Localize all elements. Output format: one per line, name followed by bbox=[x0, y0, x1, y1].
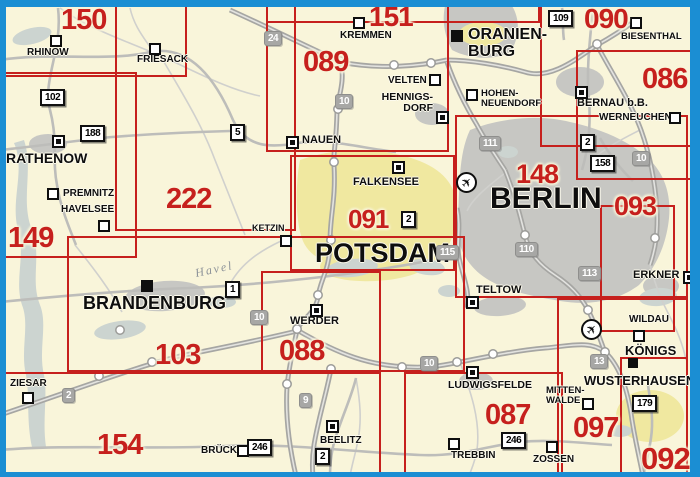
map-sheet-number-089: 089 bbox=[303, 48, 348, 77]
town-symbol-black-icon bbox=[451, 30, 463, 42]
map-sheet-number-088: 088 bbox=[279, 337, 324, 366]
motorway-shield-110: 110 bbox=[515, 242, 538, 257]
town-symbol-plain-icon bbox=[50, 35, 62, 47]
motorway-shield-10: 10 bbox=[335, 94, 353, 109]
motorway-junction-dot bbox=[489, 350, 497, 358]
map-sheet-number-090: 090 bbox=[584, 5, 628, 33]
map-sheet-number-097: 097 bbox=[573, 414, 618, 443]
town-symbol-dot-icon bbox=[466, 296, 479, 309]
town-label-ketzin: KETZIN bbox=[252, 224, 285, 234]
road-shield-102: 102 bbox=[40, 89, 65, 106]
motorway-shield-10: 10 bbox=[420, 356, 438, 371]
town-symbol-plain-icon bbox=[630, 17, 642, 29]
town-label-hohen-neuendorf: HOHEN- NEUENDORF bbox=[481, 89, 541, 110]
motorway-shield-10: 10 bbox=[632, 151, 650, 166]
map-sheet-number-151: 151 bbox=[369, 3, 413, 31]
road-shield-2: 2 bbox=[315, 448, 330, 465]
town-label-rathenow: RATHENOW bbox=[6, 151, 87, 166]
frame-left bbox=[0, 0, 6, 477]
frame-right bbox=[690, 0, 700, 477]
motorway-shield-115: 115 bbox=[436, 245, 459, 260]
town-symbol-dot-icon bbox=[392, 161, 405, 174]
road-shield-246: 246 bbox=[247, 439, 272, 456]
road-shield-188: 188 bbox=[80, 125, 105, 142]
road-shield-179: 179 bbox=[632, 395, 657, 412]
road-shield-2: 2 bbox=[401, 211, 416, 228]
motorway-shield-24: 24 bbox=[264, 31, 282, 46]
motorway-shield-10: 10 bbox=[250, 310, 268, 325]
town-symbol-plain-icon bbox=[47, 188, 59, 200]
town-symbol-dot-icon bbox=[52, 135, 65, 148]
town-label-trebbin: TREBBIN bbox=[451, 451, 495, 462]
map-sheet-number-087: 087 bbox=[485, 401, 530, 430]
town-symbol-dot-icon bbox=[286, 136, 299, 149]
town-label-ludwigsfelde: LUDWIGSFELDE bbox=[448, 380, 532, 391]
motorway-shield-9: 9 bbox=[299, 393, 312, 408]
map-sheet-number-086: 086 bbox=[642, 65, 687, 94]
town-symbol-plain-icon bbox=[98, 220, 110, 232]
town-symbol-plain-icon bbox=[149, 43, 161, 55]
town-label-zossen: ZOSSEN bbox=[533, 455, 574, 466]
town-symbol-plain-icon bbox=[22, 392, 34, 404]
town-symbol-plain-icon bbox=[353, 17, 365, 29]
airport-icon: ✈ bbox=[456, 172, 477, 193]
motorway-shield-111: 111 bbox=[479, 136, 501, 151]
town-label-potsdam: POTSDAM bbox=[315, 239, 450, 268]
town-label-werneuchen: WERNEUCHEN bbox=[599, 113, 672, 124]
town-symbol-plain-icon bbox=[280, 235, 292, 247]
map-sheet-number-150: 150 bbox=[61, 6, 106, 35]
map-sheet-number-149: 149 bbox=[8, 224, 53, 253]
town-label-velten: VELTEN bbox=[388, 76, 427, 87]
road-shield-1: 1 bbox=[225, 281, 240, 298]
town-symbol-plain-icon bbox=[429, 74, 441, 86]
road-shield-109: 109 bbox=[548, 10, 573, 27]
motorway-shield-2: 2 bbox=[62, 388, 75, 403]
town-symbol-dot-icon bbox=[310, 304, 323, 317]
town-label-brandenburg: BRANDENBURG bbox=[83, 294, 226, 313]
town-label-erkner: ERKNER bbox=[633, 270, 679, 282]
town-symbol-plain-icon bbox=[448, 438, 460, 450]
town-label-teltow: TELTOW bbox=[476, 285, 521, 297]
town-label-beelitz: BEELITZ bbox=[320, 436, 362, 447]
town-label-wildau: WILDAU bbox=[629, 315, 669, 326]
town-label-ziesar: ZIESAR bbox=[10, 379, 47, 390]
map-sheet-number-103: 103 bbox=[155, 341, 200, 370]
town-label-biesenthal: BIESENTHAL bbox=[621, 32, 682, 42]
town-label-br-ck: BRÜCK bbox=[201, 446, 237, 457]
town-symbol-plain-icon bbox=[582, 398, 594, 410]
map-sheet-number-093: 093 bbox=[614, 193, 656, 220]
town-label-friesack: FRIESACK bbox=[137, 55, 188, 66]
map-sheet-number-154: 154 bbox=[97, 431, 142, 460]
road-shield-246: 246 bbox=[501, 432, 526, 449]
town-symbol-dot-icon bbox=[466, 366, 479, 379]
town-label-werder: WERDER bbox=[290, 316, 339, 328]
frame-bottom bbox=[0, 472, 700, 477]
town-label-rhinow: RHINOW bbox=[27, 48, 69, 59]
town-symbol-black-icon bbox=[141, 280, 153, 292]
town-symbol-plain-icon bbox=[466, 89, 478, 101]
town-symbol-plain-icon bbox=[546, 441, 558, 453]
road-shield-5: 5 bbox=[230, 124, 245, 141]
map-sheet-number-091: 091 bbox=[348, 206, 388, 232]
town-label-bernau-b-b-: BERNAU b.B. bbox=[577, 98, 648, 110]
town-label-kremmen: KREMMEN bbox=[340, 31, 392, 42]
town-label-mitten-walde: MITTEN- WALDE bbox=[546, 386, 585, 407]
map-sheet-number-148: 148 bbox=[516, 161, 558, 188]
road-shield-2: 2 bbox=[580, 134, 595, 151]
town-label-wusterhausen: WUSTERHAUSEN bbox=[584, 374, 695, 388]
airport-icon: ✈ bbox=[581, 319, 602, 340]
town-label-k-nigs: KÖNIGS bbox=[625, 344, 676, 358]
town-symbol-black-icon bbox=[628, 358, 638, 368]
town-label-havelsee: HAVELSEE bbox=[61, 205, 114, 216]
road-shield-158: 158 bbox=[590, 155, 615, 172]
town-symbol-dot-icon bbox=[575, 86, 588, 99]
town-label-oranien-burg: ORANIEN- BURG bbox=[468, 26, 547, 61]
map-sheet-number-092: 092 bbox=[641, 443, 690, 474]
town-label-hennigs-dorf: HENNIGS- DORF bbox=[373, 92, 433, 115]
town-symbol-plain-icon bbox=[633, 330, 645, 342]
town-symbol-plain-icon bbox=[669, 112, 681, 124]
town-label-falkensee: FALKENSEE bbox=[353, 177, 419, 189]
frame-top bbox=[0, 0, 700, 7]
town-label-premnitz: PREMNITZ bbox=[63, 189, 114, 200]
town-symbol-dot-icon bbox=[436, 111, 449, 124]
map-canvas: 1501510890900861480932221490910881031540… bbox=[0, 0, 700, 477]
motorway-shield-13: 13 bbox=[590, 354, 608, 369]
town-symbol-dot-icon bbox=[326, 420, 339, 433]
motorway-shield-113: 113 bbox=[578, 266, 601, 281]
town-label-nauen: NAUEN bbox=[302, 135, 341, 147]
map-sheet-number-222: 222 bbox=[166, 185, 211, 214]
